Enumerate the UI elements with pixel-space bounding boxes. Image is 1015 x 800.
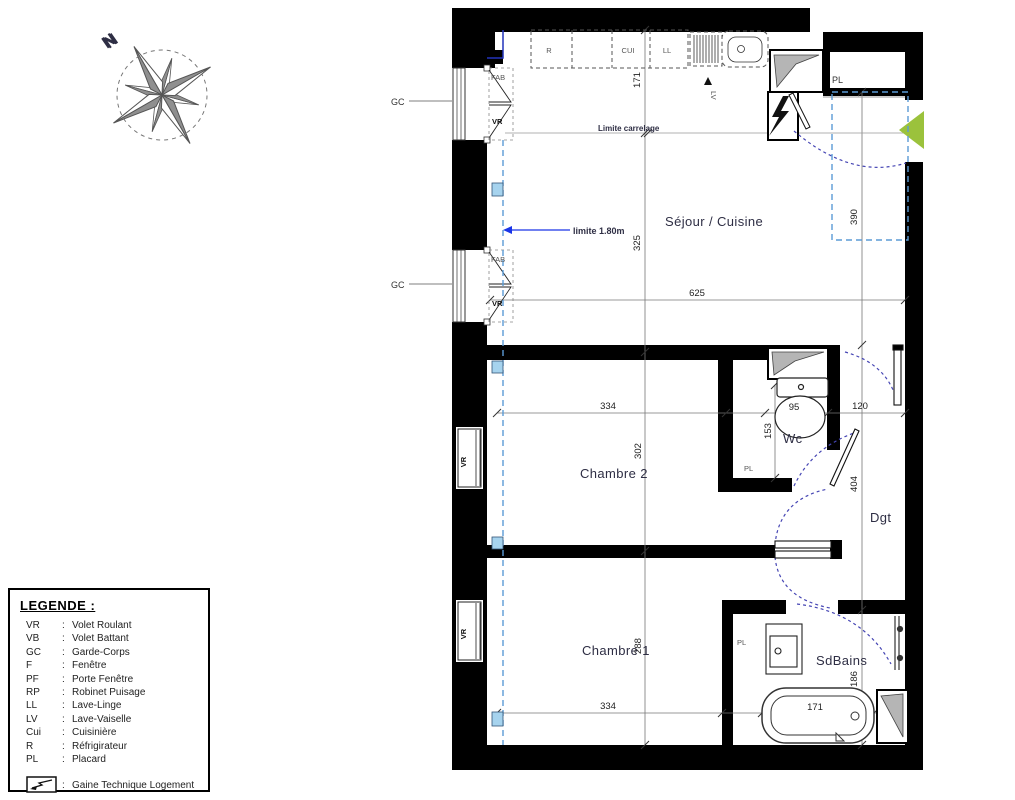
dim-dgt-width: 120 [852, 401, 868, 412]
washer-label: LL [663, 46, 671, 55]
legend-box: LEGENDE : VR:Volet Roulant VB:Volet Batt… [8, 588, 210, 792]
legend-abbr: VR [26, 619, 62, 632]
legend-abbr: PL [26, 753, 62, 766]
fridge-label: R [546, 46, 552, 55]
wall-openings [452, 68, 923, 662]
fab-label-bottom: FAB [491, 255, 505, 264]
legend-term: Réfrigirateur [72, 740, 200, 753]
vr-label-top: VR [492, 117, 503, 126]
dim-bathtub-length: 171 [807, 702, 823, 713]
room-label-sdbains: SdBains [816, 653, 867, 668]
dim-dgt-height: 404 [849, 476, 860, 492]
dim-wc-depth: 153 [763, 423, 774, 439]
legend-term: Robinet Puisage [72, 686, 200, 699]
legend-term: Volet Roulant [72, 619, 200, 632]
dim-wc-width: 95 [789, 402, 800, 413]
kitchen-counter [531, 30, 768, 68]
sejour-dgt-door-arc [845, 352, 897, 402]
gtl-symbol-icon [26, 776, 58, 794]
soffite-marker-entry [770, 50, 823, 92]
legend-abbr: GC [26, 646, 62, 659]
legend-abbr: R [26, 740, 62, 753]
fab-label-top: FAB [491, 73, 505, 82]
toilet [775, 378, 828, 438]
chambre2-door-arc [775, 489, 828, 545]
legend-abbr: RP [26, 686, 62, 699]
legend-term: Placard [72, 753, 200, 766]
dimension-ticks [486, 26, 909, 749]
legend-abbr: LV [26, 713, 62, 726]
bathtub [762, 688, 874, 743]
room-label-sejour: Séjour / Cuisine [665, 214, 763, 229]
limite-carrelage-label: Limite carrelage [598, 124, 660, 133]
ceiling-limit-lines [503, 92, 908, 745]
legend-abbr: LL [26, 699, 62, 712]
placard-label-entry: PL [832, 75, 843, 85]
dim-chambre1-width: 334 [600, 701, 616, 712]
legend-term: Porte Fenêtre [72, 673, 200, 686]
dim-chambre2-height: 302 [633, 443, 644, 459]
sejour-dgt-door-leaf [894, 348, 901, 405]
room-label-wc: Wc [783, 431, 803, 446]
dishwasher-label: LV [709, 91, 718, 100]
vr-label-bottom: VR [492, 299, 503, 308]
dim-chambre2-width: 334 [600, 401, 616, 412]
legend-abbr: PF [26, 673, 62, 686]
legend-term: Fenêtre [72, 659, 200, 672]
legend-term: Lave-Vaiselle [72, 713, 200, 726]
room-label-chambre2: Chambre 2 [580, 466, 648, 481]
cooker-label: CUI [622, 46, 635, 55]
compass-rose: N N [86, 19, 239, 172]
legend-abbr: F [26, 659, 62, 672]
sink-detail [694, 35, 762, 63]
dim-sejour-width: 625 [689, 288, 705, 299]
limit-annotation [503, 226, 570, 234]
soffite-marker-wc [768, 348, 828, 379]
dim-entry-depth: 390 [849, 209, 860, 225]
vr-label-window-chambre1: VR [459, 628, 468, 639]
gc-label-bottom: GC [391, 280, 405, 290]
legend-term: Cuisinière [72, 726, 200, 739]
dim-kitchen-depth: 171 [632, 72, 643, 88]
placard-label-wc: PL [744, 464, 753, 473]
placard-label-chambre1: PL [737, 638, 746, 647]
dishwasher-arrow [704, 77, 712, 85]
legend-term: Volet Battant [72, 632, 200, 645]
chambre1-door-leaf [775, 551, 831, 558]
chambre2-door-leaf [775, 541, 831, 548]
vr-label-window-chambre2: VR [459, 456, 468, 467]
door-hinge [893, 345, 903, 350]
towel-radiator [895, 616, 903, 670]
legend-items: VR:Volet Roulant VB:Volet Battant GC:Gar… [26, 619, 200, 766]
legend-title: LEGENDE : [20, 598, 95, 613]
washbasin [766, 624, 802, 674]
dim-sejour-height: 325 [632, 235, 643, 251]
entry-door-arc [794, 131, 906, 167]
dim-chambre1-height: 288 [633, 638, 644, 654]
legend-term: Garde-Corps [72, 646, 200, 659]
faux-plafond-zone [832, 92, 908, 240]
floor-plan-page: N N [0, 0, 1015, 800]
legend-term: Gaine Technique Logement [72, 780, 200, 791]
arrow-left-icon [503, 226, 512, 234]
room-label-dgt: Dgt [870, 510, 891, 525]
legend-abbr: Cui [26, 726, 62, 739]
legend-term: Lave-Linge [72, 699, 200, 712]
legend-symbol-gtl: : Gaine Technique Logement [26, 776, 200, 794]
legend-abbr: VB [26, 632, 62, 645]
dim-sdbains-depth: 186 [849, 671, 860, 687]
limit-180-label: limite 1.80m [573, 226, 625, 236]
soffite-marker-sdbains [877, 690, 908, 743]
gc-label-top: GC [391, 97, 405, 107]
